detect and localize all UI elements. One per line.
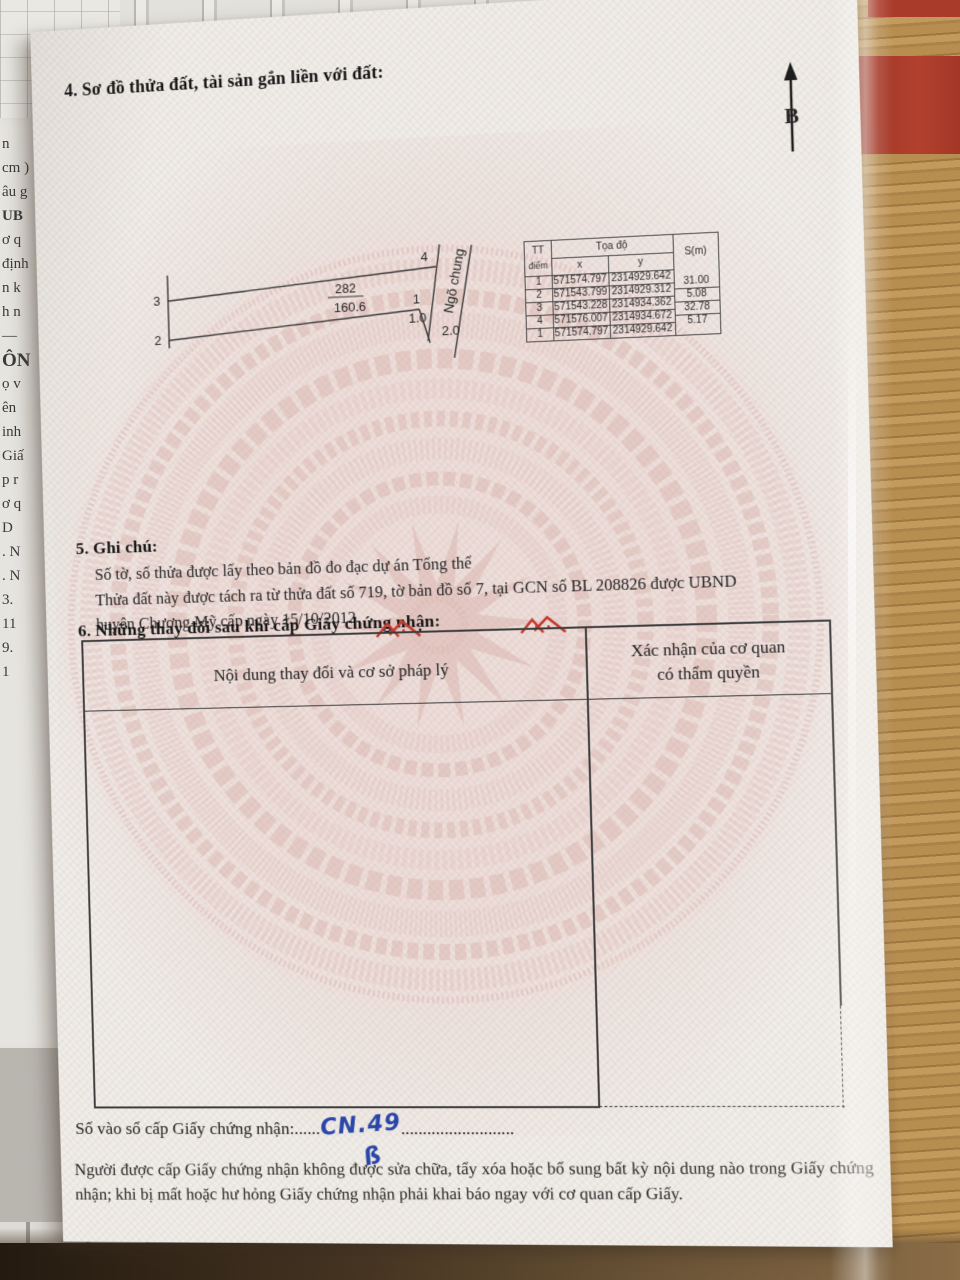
coordinate-table: TT điểm Tọa độ x y S(m) 1 571574.797 231…	[523, 232, 721, 343]
paper-fragment: định	[2, 256, 31, 273]
parcel-number: 282	[335, 280, 357, 296]
table-dark-edge	[0, 1243, 960, 1280]
north-arrow: B	[769, 59, 813, 157]
dim-label-2: 2.0	[442, 322, 460, 338]
parcel-area: 160.6	[334, 299, 366, 316]
plot-diagram: 3 2 4 1 1.0 2.0 282 160.6 Ngõ chung	[128, 232, 541, 376]
dim-label-1: 1.0	[408, 310, 426, 326]
paper-fragment: . N	[2, 568, 31, 585]
paper-fragment: —	[2, 328, 31, 345]
changes-col1-header: Nội dung thay đổi và cơ sở pháp lý	[82, 657, 586, 690]
serial-dots: ..........................	[400, 1118, 514, 1138]
paper-fragment: p r	[2, 472, 31, 489]
paper-fragment: ọ v	[2, 376, 31, 393]
paper-fragment: cm )	[2, 160, 31, 177]
north-label: B	[784, 105, 799, 129]
paper-fragment: 1	[2, 664, 31, 681]
corner-label-2: 2	[154, 333, 161, 348]
table-border-right-dashed	[840, 1006, 844, 1108]
coord-cell-tt: 1	[525, 275, 552, 289]
coord-header-tt2: điểm	[525, 259, 552, 273]
paper-fragment: ơ q	[2, 496, 31, 513]
coord-cell-tt: 3	[526, 301, 553, 315]
plot-outline	[167, 243, 475, 370]
coord-cell-tt: 1	[527, 327, 554, 341]
coord-header-y: y	[608, 254, 674, 270]
serial-label: Số vào sổ cấp Giấy chứng nhận:	[75, 1118, 294, 1138]
red-folder-stripe	[856, 56, 960, 154]
table-header-line	[83, 693, 833, 712]
coord-cell-tt: 2	[526, 288, 553, 302]
paper-fragment: Giấ	[2, 448, 31, 465]
paper-fragment: ÔN	[2, 352, 31, 369]
coord-header-tt: TT	[525, 244, 552, 258]
paper-fragment: D	[2, 520, 31, 537]
changes-col2-header-line2: có thẩm quyền	[586, 658, 833, 688]
paper-fragment: ơ q	[2, 232, 31, 249]
corner-label-3: 3	[153, 294, 160, 309]
serial-row: Số vào sổ cấp Giấy chứng nhận:......CN.4…	[75, 1114, 515, 1140]
serial-dots: ......	[294, 1118, 320, 1138]
paper-fragment: ên	[2, 400, 31, 417]
paper-fragment: 3.	[2, 592, 31, 609]
certificate-page: 4. Sơ đồ thửa đất, tài sản gắn liền với …	[30, 0, 892, 1247]
red-folder-stripe-top	[868, 0, 960, 17]
section5-title: 5. Ghi chú:	[76, 536, 158, 559]
north-arrow-head-icon	[783, 61, 797, 80]
changes-table: Nội dung thay đổi và cơ sở pháp lý Xác n…	[81, 619, 845, 1108]
section4-title: 4. Sơ đồ thửa đất, tài sản gắn liền với …	[64, 62, 384, 102]
alley-label: Ngõ chung	[441, 247, 468, 314]
alley-line-1	[425, 244, 442, 340]
coord-cell-x: 571574.797	[553, 325, 610, 341]
paper-fragment: n	[2, 136, 31, 153]
underlying-paper-text: n cm ) âu g UB ơ q định n k h n — ÔN ọ v…	[2, 136, 31, 681]
paper-fragment: 9.	[2, 640, 31, 657]
coord-header-s: S(m)	[673, 244, 718, 259]
paper-fragment: 11	[2, 616, 31, 633]
paper-fragment: h n	[2, 304, 31, 321]
paper-fragment: n k	[2, 280, 31, 297]
paper-fragment: âu g	[2, 184, 31, 201]
corner-label-1: 1	[413, 291, 421, 306]
coord-cell-tt: 4	[527, 314, 554, 328]
paper-fragment: . N	[2, 544, 31, 561]
table-border-bottom-dashed	[599, 1106, 845, 1107]
s-value: 5.17	[675, 313, 720, 328]
corner-label-4: 4	[420, 249, 428, 265]
coord-cell-y: 2314929.642	[610, 322, 676, 338]
serial-value-handwritten: CN.49	[319, 1109, 402, 1140]
paper-fragment: inh	[2, 424, 31, 441]
footer-paragraph: Người được cấp Giấy chứng nhận không đượ…	[74, 1155, 875, 1207]
coord-header-x: x	[551, 257, 608, 273]
paper-fragment: UB	[2, 208, 31, 225]
table-border-bottom	[94, 1106, 599, 1108]
photo-scene: n cm ) âu g UB ơ q định n k h n — ÔN ọ v…	[0, 0, 960, 1280]
